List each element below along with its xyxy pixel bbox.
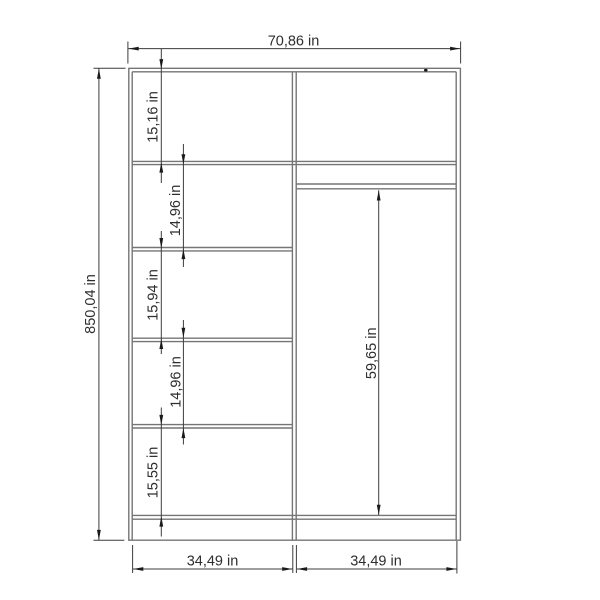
svg-text:14,96 in: 14,96 in [168,356,184,408]
svg-text:15,16 in: 15,16 in [145,91,161,143]
svg-text:34,49 in: 34,49 in [187,553,239,569]
svg-text:850,04 in: 850,04 in [83,274,99,334]
svg-text:34,49 in: 34,49 in [350,553,402,569]
svg-text:15,55 in: 15,55 in [145,447,161,499]
svg-text:59,65 in: 59,65 in [364,327,380,379]
svg-text:15,94 in: 15,94 in [145,269,161,321]
svg-text:70,86 in: 70,86 in [268,34,320,50]
svg-text:14,96 in: 14,96 in [168,185,184,237]
